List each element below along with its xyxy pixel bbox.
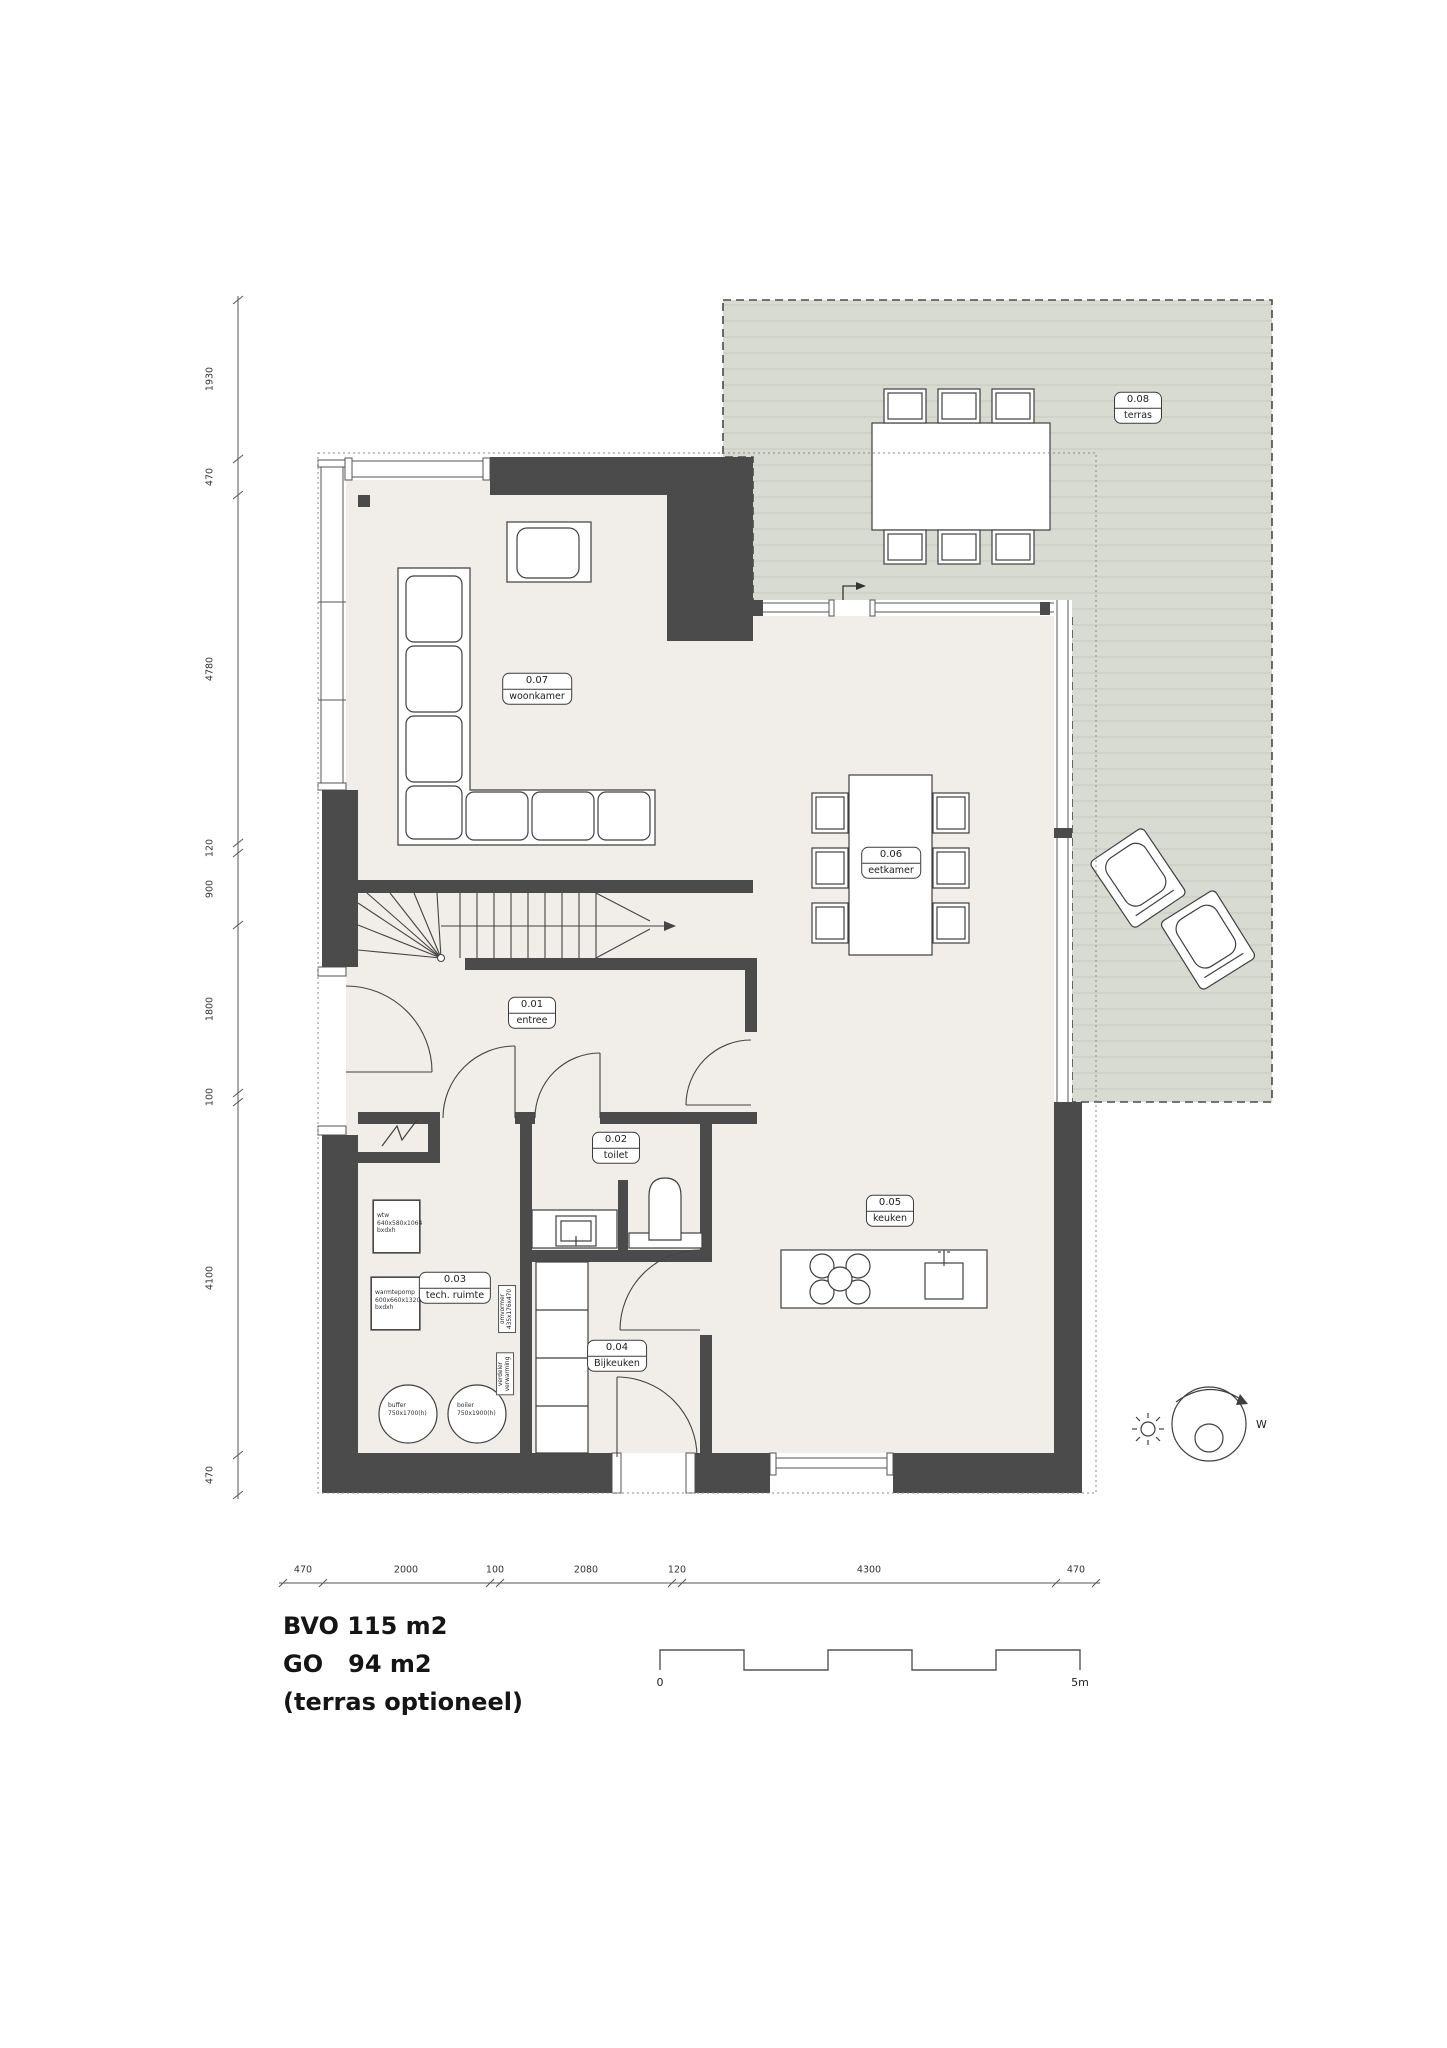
wall-left-lower <box>322 1135 358 1455</box>
toilet-bowl <box>649 1178 681 1240</box>
room-label-entree: 0.01 entree <box>508 997 556 1029</box>
wall-meterkast-h <box>358 1152 440 1163</box>
room-name: woonkamer <box>503 689 571 704</box>
armchair <box>507 522 591 582</box>
room-number: 0.07 <box>503 674 571 690</box>
terrace-table <box>872 389 1050 564</box>
area-go: GO 94 m2 <box>283 1650 432 1678</box>
room-label-terras: 0.08 terras <box>1114 392 1162 424</box>
dim-bottom-100: 100 <box>486 1565 504 1576</box>
scale-bar <box>660 1650 1080 1670</box>
wall-stairs-bottom <box>465 958 753 970</box>
area-note: (terras optioneel) <box>283 1688 523 1716</box>
dim-left-1930: 1930 <box>205 367 216 391</box>
wall-post <box>753 600 763 616</box>
room-label-eetkamer: 0.06 eetkamer <box>861 847 921 879</box>
wall-left-upper <box>322 790 358 967</box>
wall-post <box>1040 602 1050 615</box>
room-name: eetkamer <box>862 863 920 878</box>
boiler-label: boiler 750x1900(h) <box>457 1402 503 1417</box>
buffer-label: buffer 750x1700(h) <box>388 1402 434 1417</box>
scale-zero: 0 <box>657 1676 664 1689</box>
dim-bottom-2080: 2080 <box>574 1565 598 1576</box>
wall-bottom-left <box>322 1453 612 1493</box>
room-number: 0.03 <box>420 1273 490 1289</box>
room-number: 0.06 <box>862 848 920 864</box>
dim-left-470b: 470 <box>205 1466 216 1484</box>
wtw-label: wtw 640x580x1064 bxdxh <box>373 1200 420 1253</box>
room-name: Bijkeuken <box>588 1356 646 1371</box>
wall-right-lower <box>1054 1102 1082 1453</box>
room-name: tech. ruimte <box>420 1288 490 1303</box>
room-name: keuken <box>867 1211 913 1226</box>
room-name: toilet <box>593 1148 639 1163</box>
dim-left-120: 120 <box>205 839 216 857</box>
dim-bottom-120: 120 <box>668 1565 686 1576</box>
wall-hall-right <box>745 958 757 1032</box>
dim-left-900: 900 <box>205 880 216 898</box>
room-number: 0.02 <box>593 1133 639 1149</box>
dim-left-470: 470 <box>205 468 216 486</box>
wall-stairs-top <box>358 880 753 893</box>
room-label-toilet: 0.02 toilet <box>592 1132 640 1164</box>
wall-hall-south-1 <box>358 1112 440 1124</box>
room-name: terras <box>1115 408 1161 423</box>
wall-bottom-mid <box>695 1453 770 1493</box>
room-label-bijkeuken: 0.04 Bijkeuken <box>587 1340 647 1372</box>
wall-top <box>490 457 753 495</box>
bijkeuken-cabinets <box>536 1262 588 1453</box>
room-number: 0.05 <box>867 1196 913 1212</box>
floorplan-page: 0.01 entree 0.02 toilet 0.03 tech. ruimt… <box>0 0 1447 2048</box>
room-name: entree <box>509 1013 555 1028</box>
dim-left-100: 100 <box>205 1088 216 1106</box>
wall-tech-bijkeuken <box>520 1124 532 1453</box>
sun-icon <box>1141 1422 1155 1436</box>
room-number: 0.08 <box>1115 393 1161 409</box>
west-label: W <box>1256 1418 1267 1431</box>
wall-hall-south-3 <box>600 1112 757 1124</box>
wall-bottom-right <box>893 1453 1082 1493</box>
wall-post <box>1054 828 1072 838</box>
dim-bottom-470: 470 <box>294 1565 312 1576</box>
area-bvo: BVO 115 m2 <box>283 1612 447 1640</box>
inverter-label: omvormer 435x176x470 <box>498 1285 516 1333</box>
wall-toilet-stub <box>618 1180 628 1250</box>
kitchen-island <box>781 1250 987 1308</box>
room-label-tech-ruimte: 0.03 tech. ruimte <box>419 1272 491 1304</box>
wall-corner-column <box>667 495 753 641</box>
kitchen-sink <box>925 1263 963 1299</box>
dim-left-4100: 4100 <box>205 1266 216 1290</box>
wall-toilet-right <box>700 1124 712 1250</box>
room-number: 0.01 <box>509 998 555 1014</box>
wall-hall-south-2 <box>515 1112 535 1124</box>
dim-bottom-2000: 2000 <box>394 1565 418 1576</box>
dim-left-1800: 1800 <box>205 997 216 1021</box>
manifold-label: verdeler verwarming <box>496 1353 514 1396</box>
dim-bottom-470b: 470 <box>1067 1565 1085 1576</box>
floorplan-drawing <box>0 0 1447 2048</box>
wall-bijkeuken-right <box>700 1335 712 1453</box>
wall-post <box>358 495 370 507</box>
room-label-keuken: 0.05 keuken <box>866 1195 914 1227</box>
sun-orientation-icon <box>1132 1387 1248 1461</box>
heatpump-label: warmtepomp 600x660x1320 bxdxh <box>371 1277 420 1330</box>
dim-left-4780: 4780 <box>205 657 216 681</box>
dim-bottom-4300: 4300 <box>857 1565 881 1576</box>
room-number: 0.04 <box>588 1341 646 1357</box>
room-label-woonkamer: 0.07 woonkamer <box>502 673 572 705</box>
scale-5m: 5m <box>1071 1676 1089 1689</box>
